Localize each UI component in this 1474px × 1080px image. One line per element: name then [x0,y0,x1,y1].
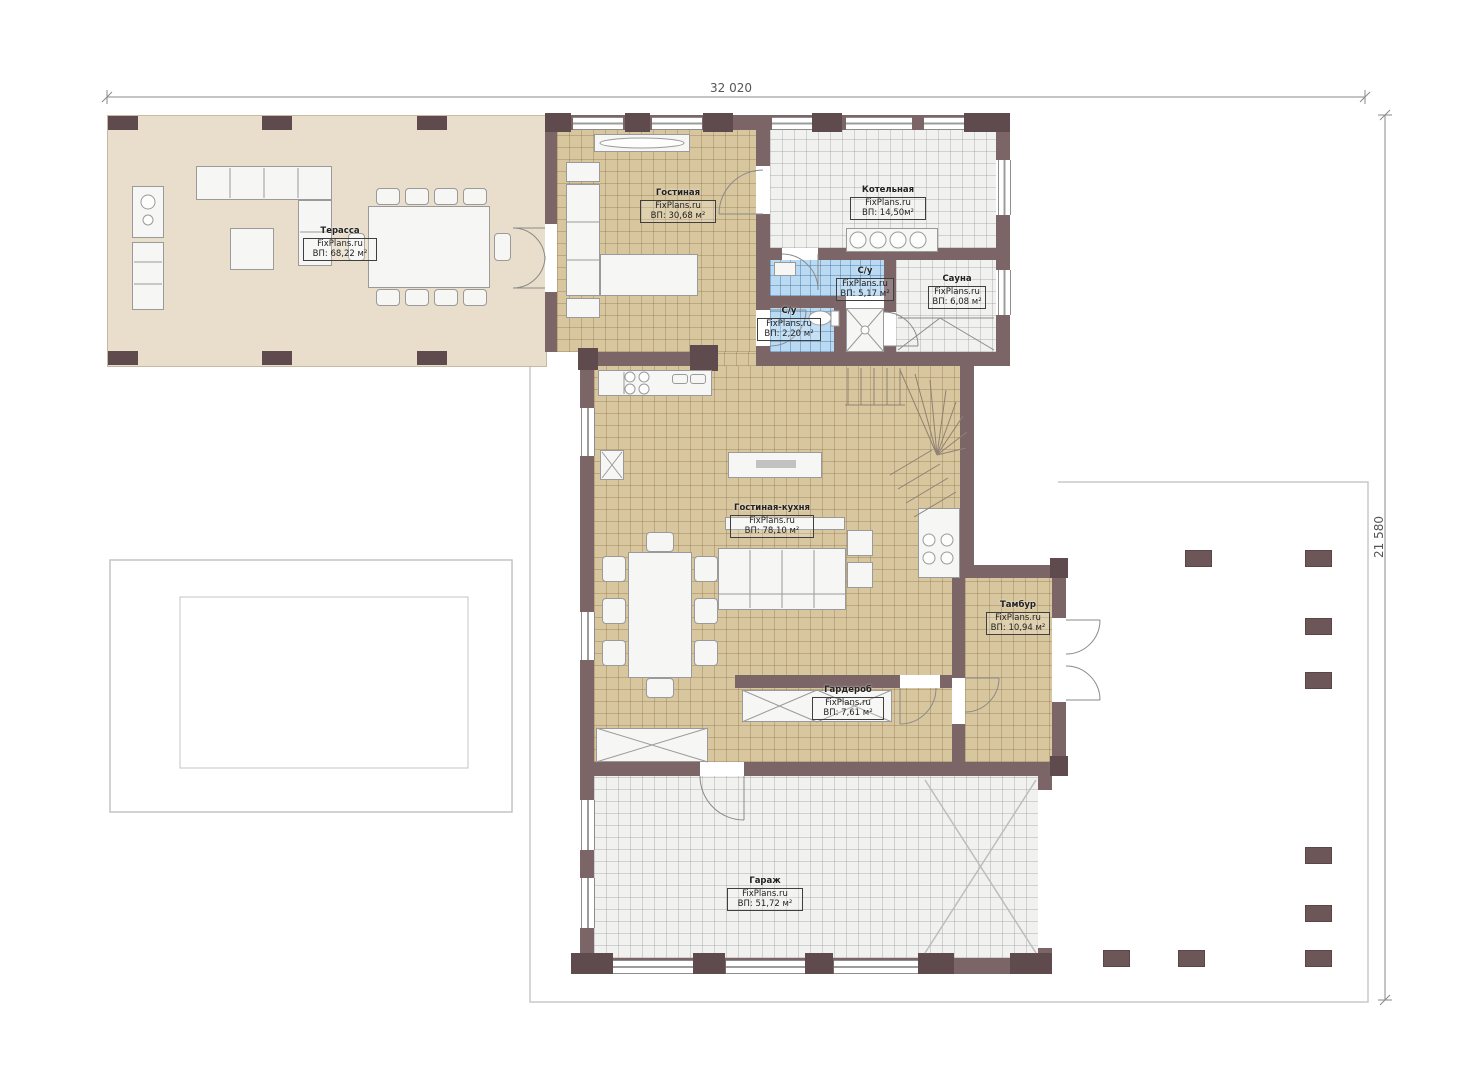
watermark: FixPlans.ru [644,201,712,212]
dimension-height-label: 21 580 [1372,516,1386,558]
room-area: ВП: 51,72 м² [731,899,799,910]
watermark: FixPlans.ru [990,613,1046,624]
watermark: FixPlans.ru [854,198,922,209]
room-area: ВП: 10,94 м² [990,623,1046,634]
room-area: ВП: 7,61 м² [816,708,880,719]
watermark: FixPlans.ru [307,239,373,250]
room-name: Сауна [928,274,986,285]
room-label-boiler: Котельная FixPlans.ruВП: 14,50м² [850,185,926,220]
room-label-vestibule: Тамбур FixPlans.ruВП: 10,94 м² [986,600,1050,635]
room-label-wardrobe: Гардероб FixPlans.ruВП: 7,61 м² [812,685,884,720]
fixtures [141,138,953,564]
room-area: ВП: 6,08 м² [932,297,982,308]
room-name: Гостиная-кухня [730,503,814,514]
room-area: ВП: 14,50м² [854,208,922,219]
dimension-width-label: 32 020 [710,81,752,95]
watermark: FixPlans.ru [731,889,799,900]
room-area: ВП: 30,68 м² [644,211,712,222]
dimension-lines [102,90,1392,1005]
room-area: ВП: 78,10 м² [734,526,810,537]
room-label-bath2: С/у FixPlans.ruВП: 2,20 м² [757,306,821,341]
floor-plan-canvas: 32 020 21 580 Терасса FixPlans.ruВП: 68,… [0,0,1474,1080]
door-arcs [513,170,1100,820]
room-name: С/у [757,306,821,317]
room-area: ВП: 5,17 м² [840,289,890,300]
room-name: Гардероб [812,685,884,696]
staircase [845,368,967,517]
furniture-detail-lines [134,168,846,608]
watermark: FixPlans.ru [734,516,810,527]
room-name: Терасса [303,226,377,237]
room-label-garage: Гараж FixPlans.ruВП: 51,72 м² [727,876,803,911]
watermark: FixPlans.ru [932,287,982,298]
room-area: ВП: 68,22 м² [307,249,373,260]
room-name: Гараж [727,876,803,887]
watermark: FixPlans.ru [816,698,880,709]
garage-cross-mark [925,780,1036,953]
room-label-sauna: Сауна FixPlans.ruВП: 6,08 м² [928,274,986,309]
watermark: FixPlans.ru [761,319,817,330]
watermark: FixPlans.ru [840,279,890,290]
room-area: ВП: 2,20 м² [761,329,817,340]
sauna-bench [898,318,994,350]
room-name: Гостиная [640,188,716,199]
room-name: Тамбур [986,600,1050,611]
room-label-terrace: Терасса FixPlans.ruВП: 68,22 м² [303,226,377,261]
room-label-bath1: С/у FixPlans.ruВП: 5,17 м² [836,266,894,301]
room-label-living: Гостиная FixPlans.ruВП: 30,68 м² [640,188,716,223]
room-name: С/у [836,266,894,277]
room-name: Котельная [850,185,926,196]
room-label-kitchen-living: Гостиная-кухня FixPlans.ruВП: 78,10 м² [730,503,814,538]
